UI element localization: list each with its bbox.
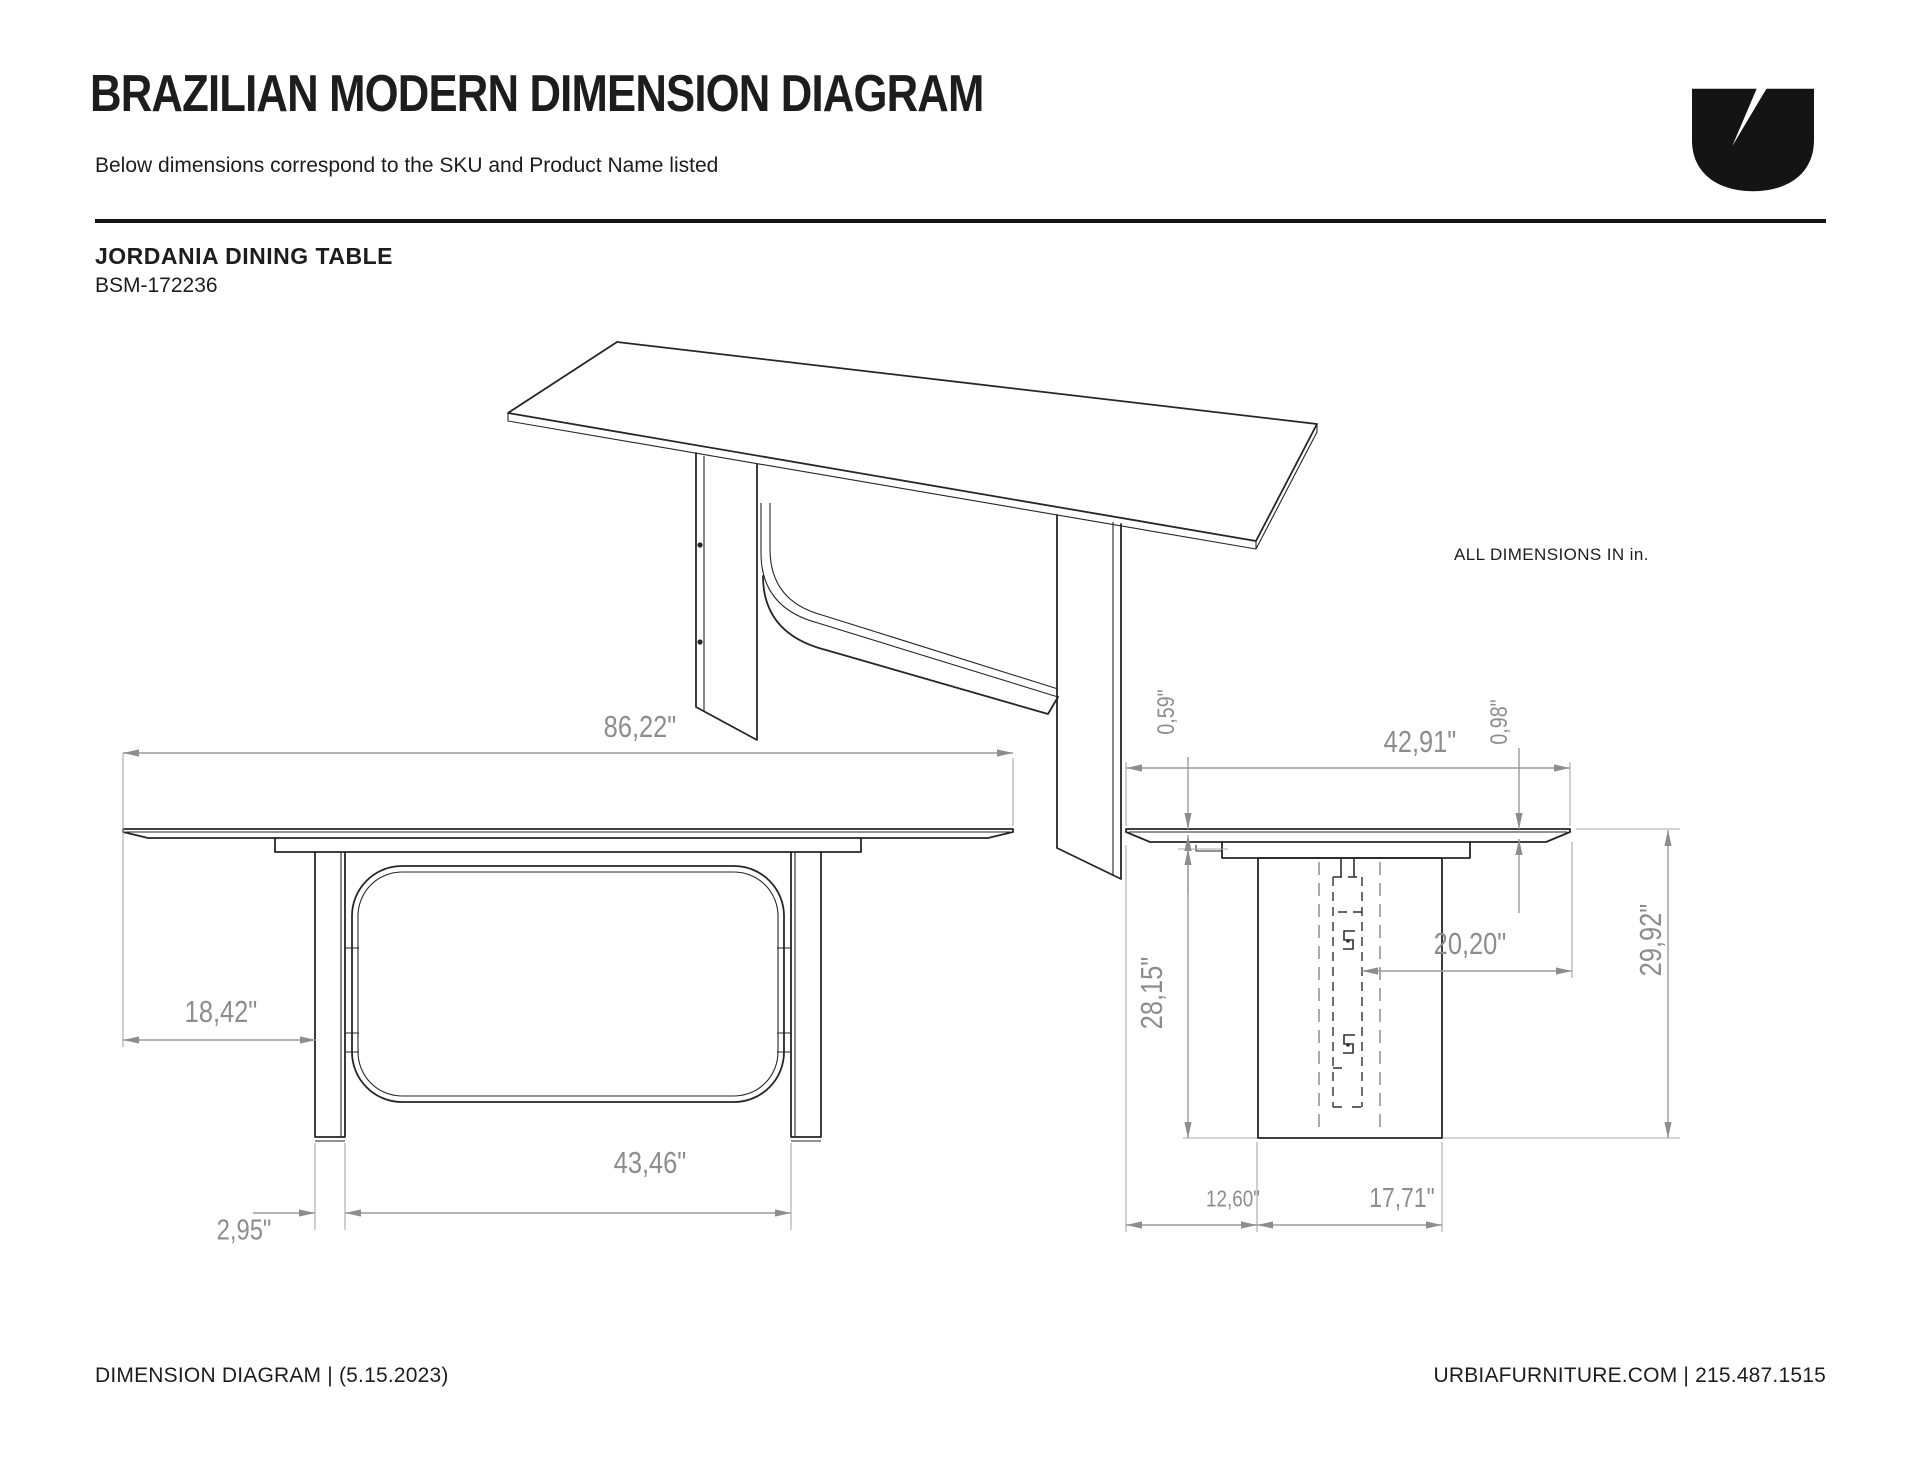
dim-label-top-thickness: 0,59" (1153, 689, 1181, 734)
perspective-view (508, 342, 1317, 879)
dim-label-inner-span: 43,46" (614, 1145, 687, 1181)
technical-drawing (0, 0, 1920, 1484)
dimension-diagram-page: BRAZILIAN MODERN DIMENSION DIAGRAM Below… (0, 0, 1920, 1484)
dim-label-total-height: 29,92" (1633, 904, 1669, 977)
side-view (1126, 748, 1680, 1232)
dim-label-edge-thickness: 0,98" (1486, 699, 1514, 744)
front-view (123, 753, 1013, 1230)
dim-label-leg-thickness: 2,95" (217, 1215, 272, 1248)
dim-label-front-overhang: 18,42" (185, 994, 258, 1030)
dim-label-underside-height: 28,15" (1134, 957, 1170, 1030)
dim-label-pedestal-depth: 17,71" (1369, 1182, 1435, 1214)
footer-document-info: DIMENSION DIAGRAM | (5.15.2023) (95, 1364, 449, 1388)
screw-dot (697, 542, 702, 547)
dim-label-side-overhang: 12,60" (1206, 1186, 1260, 1213)
footer-contact-info: URBIAFURNITURE.COM | 215.487.1515 (1433, 1364, 1826, 1388)
dim-label-center-to-edge: 20,20" (1434, 926, 1507, 962)
dim-label-front-width: 86,22" (604, 709, 677, 745)
screw-dot (697, 639, 702, 644)
dim-label-side-depth: 42,91" (1384, 724, 1457, 760)
